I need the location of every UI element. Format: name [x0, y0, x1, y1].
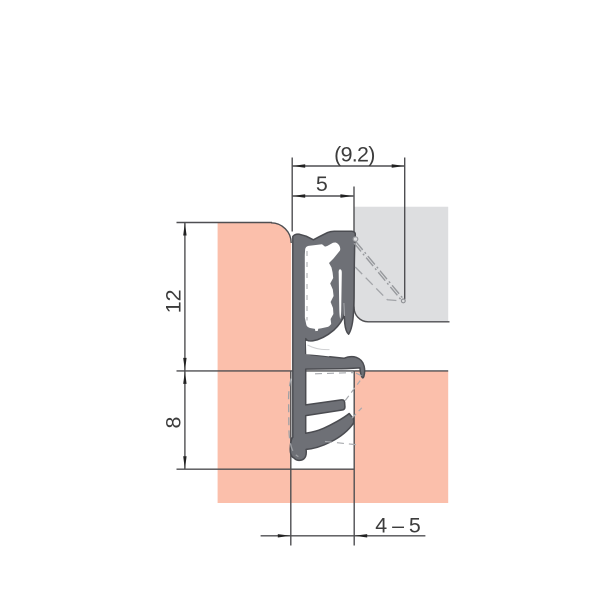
- svg-text:5: 5: [316, 172, 328, 196]
- svg-text:(9.2): (9.2): [334, 143, 374, 167]
- svg-text:8: 8: [161, 417, 185, 429]
- svg-text:12: 12: [161, 290, 185, 314]
- svg-text:4 – 5: 4 – 5: [375, 514, 420, 538]
